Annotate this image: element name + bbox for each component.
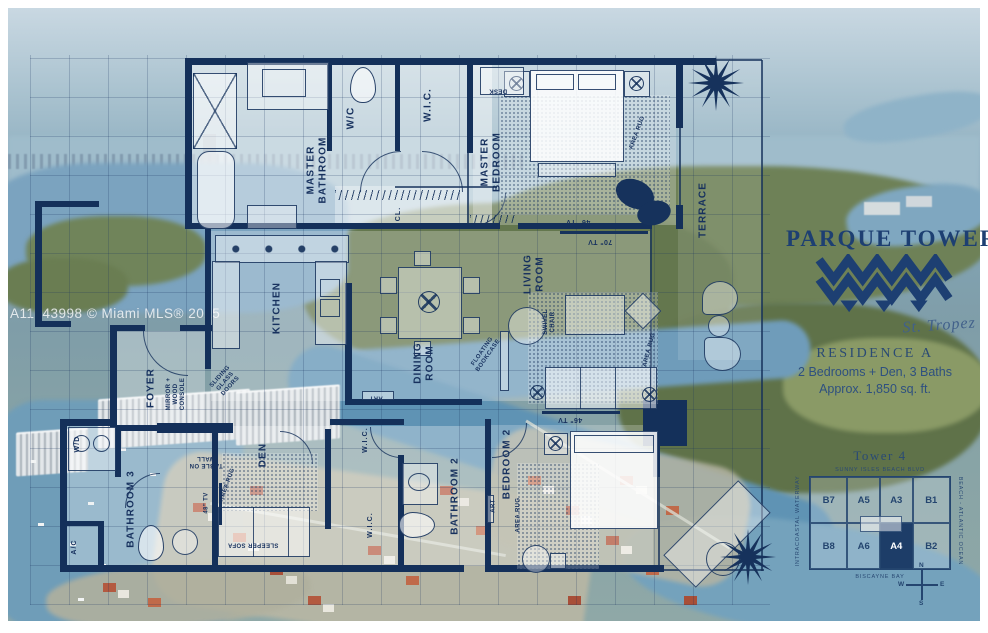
- compass-e: E: [940, 581, 944, 588]
- side-table: [708, 315, 730, 337]
- annotation-art-bedroom2: ART: [490, 499, 497, 513]
- swivel-chair: [508, 307, 546, 345]
- glass-wall: [679, 125, 681, 229]
- wall: [35, 321, 71, 327]
- keyplan-street-left: INTRACOASTAL WATERWAY: [795, 456, 801, 586]
- annotation-tv-70: 70" TV: [588, 237, 612, 245]
- keyplan-title: Tower 4: [795, 448, 965, 464]
- compass-w: W: [898, 581, 904, 588]
- residence-beds: 2 Bedrooms + Den, 3 Baths: [770, 365, 980, 379]
- brand-block: PARQUE TOWERS St. Tropez: [786, 226, 982, 339]
- residence-title: RESIDENCE A: [770, 346, 980, 362]
- closet-line: [467, 153, 469, 225]
- unit-b8: B8: [810, 523, 847, 569]
- room-label-den: DEN: [257, 443, 269, 467]
- armchair: [522, 545, 550, 573]
- residence-area: Approx. 1,850 sq. ft.: [770, 382, 980, 396]
- room-label-foyer: FOYER: [145, 368, 157, 408]
- keyplan-street-top: SUNNY ISLES BEACH BLVD: [795, 467, 965, 473]
- dining-chair: [463, 317, 480, 334]
- room-label-dining-room: DINING ROOM: [413, 342, 436, 384]
- dining-chair: [380, 317, 397, 334]
- palm-tree-icon: [688, 55, 744, 111]
- annotation-swivel-chair: SWIVEL CHAIR: [543, 309, 557, 334]
- room-label-wc: W/C: [345, 107, 357, 130]
- room-label-wic-hall: W.I.C.: [362, 427, 370, 453]
- wall: [205, 229, 211, 369]
- annotation-sleeper-sofa: SLEEPER SOFA: [228, 540, 279, 547]
- wall: [35, 201, 42, 327]
- room-label-cl: CL.: [395, 207, 403, 222]
- lounge-chair: [704, 337, 741, 371]
- ottoman: [550, 553, 566, 569]
- elevator-core: [860, 516, 901, 533]
- coffee-table: [565, 295, 625, 335]
- glass-wall: [658, 475, 660, 567]
- residence-block: RESIDENCE A 2 Bedrooms + Den, 3 Baths Ap…: [770, 346, 980, 396]
- room-label-wic: W.I.C.: [422, 88, 434, 122]
- wall: [35, 201, 99, 207]
- sleeper-sofa: [218, 507, 310, 557]
- unit-b1: B1: [913, 477, 950, 523]
- room-label-wic-2: W.I.C.: [367, 512, 375, 538]
- compass-ew-line: [906, 584, 938, 586]
- area-rug: [222, 453, 318, 511]
- pillow: [574, 435, 654, 453]
- annotation-table-on-wall: TABLE ON WALL: [189, 454, 222, 468]
- toilet: [350, 67, 376, 103]
- wall: [185, 58, 192, 228]
- pillow: [578, 74, 616, 90]
- pillow: [536, 74, 574, 90]
- dryer-drum: [93, 435, 110, 452]
- keyplan-block: Tower 4 SUNNY ISLES BEACH BLVD INTRACOAS…: [795, 448, 965, 580]
- vanity-low: [247, 205, 297, 229]
- wall: [325, 429, 331, 529]
- shower: [193, 73, 237, 149]
- vanity-sink: [262, 69, 306, 97]
- unit-b7: B7: [810, 477, 847, 523]
- keyplan-street-right: BEACH - ATLANTIC OCEAN: [957, 456, 963, 586]
- room-label-master-bedroom: MASTER BEDROOM: [480, 132, 503, 192]
- wall: [115, 325, 145, 331]
- bathtub: [197, 151, 235, 229]
- compass-s: S: [919, 600, 923, 607]
- listing-floorplan-image: A11843998 © Miami MLS® 2025: [0, 0, 988, 633]
- terrace-rail: [761, 60, 763, 571]
- compass-n: N: [919, 562, 924, 569]
- room-label-ac: A/C: [71, 539, 79, 554]
- annotation-mirror-console: MIRROR + WOOD CONSOLE: [166, 378, 188, 411]
- sink: [408, 473, 430, 491]
- wall: [115, 425, 215, 431]
- dining-chair: [380, 277, 397, 294]
- room-label-bathroom-2: BATHROOM 2: [449, 457, 461, 534]
- annotation-desk: DESK: [489, 86, 507, 93]
- dining-chair: [463, 277, 480, 294]
- room-label-bedroom-2: BEDROOM 2: [501, 429, 513, 499]
- brand-name: PARQUE TOWERS: [786, 226, 982, 252]
- bench: [538, 163, 616, 177]
- brand-logo-mark: [810, 254, 958, 316]
- toilet: [138, 525, 164, 561]
- wall: [110, 325, 117, 427]
- white-building-right-2: [906, 196, 932, 207]
- wall: [60, 419, 117, 426]
- tv: [542, 411, 620, 414]
- room-label-living-room: LIVING ROOM: [523, 254, 546, 294]
- lamp-icon: [530, 385, 545, 400]
- sofa: [545, 367, 657, 409]
- wall: [676, 58, 683, 128]
- lounge-chair: [702, 281, 738, 315]
- annotation-art: ART: [369, 393, 383, 400]
- lamp-icon: [548, 436, 563, 451]
- annotation-tv-48: 48" TV: [203, 492, 210, 513]
- wall: [395, 58, 400, 151]
- white-building-right-1: [864, 202, 900, 215]
- lamp-icon: [629, 76, 644, 91]
- room-label-master-bathroom: MASTER BATHROOM: [306, 137, 329, 204]
- palm-tree-icon: [720, 529, 776, 585]
- annotation-area-rug-bedroom2: AREA RUG: [515, 498, 522, 533]
- cooktop-counter: [215, 235, 349, 263]
- boats: [8, 8, 14, 11]
- wall: [330, 419, 404, 425]
- room-label-bathroom-3: BATHROOM 3: [125, 470, 137, 547]
- compass: N S W E: [900, 562, 944, 606]
- wall: [67, 521, 104, 526]
- annotation-tv-46-living: 46" TV: [558, 415, 582, 423]
- tv: [560, 231, 648, 234]
- lamp-icon: [642, 387, 657, 402]
- sink: [320, 279, 340, 297]
- bookcase: [500, 331, 509, 391]
- centerpiece: [418, 291, 440, 313]
- keyplan-unit-grid: B7 A5 A3 B1 B8 A6 A4 B2: [809, 476, 951, 570]
- wall: [60, 419, 67, 572]
- room-label-terrace: TERRACE: [697, 182, 709, 238]
- annotation-tv-46: 46" TV: [566, 217, 590, 225]
- wall: [98, 523, 104, 572]
- wall: [467, 58, 473, 153]
- room-label-kitchen: KITCHEN: [271, 282, 283, 334]
- counter: [212, 261, 240, 349]
- sink: [320, 299, 340, 317]
- dining-chair: [414, 251, 431, 266]
- room-label-wd: W/D: [74, 436, 82, 453]
- floor-plan: MASTER BATHROOM W/C W.I.C. CL. MASTER BE…: [30, 55, 770, 605]
- sink: [172, 529, 198, 555]
